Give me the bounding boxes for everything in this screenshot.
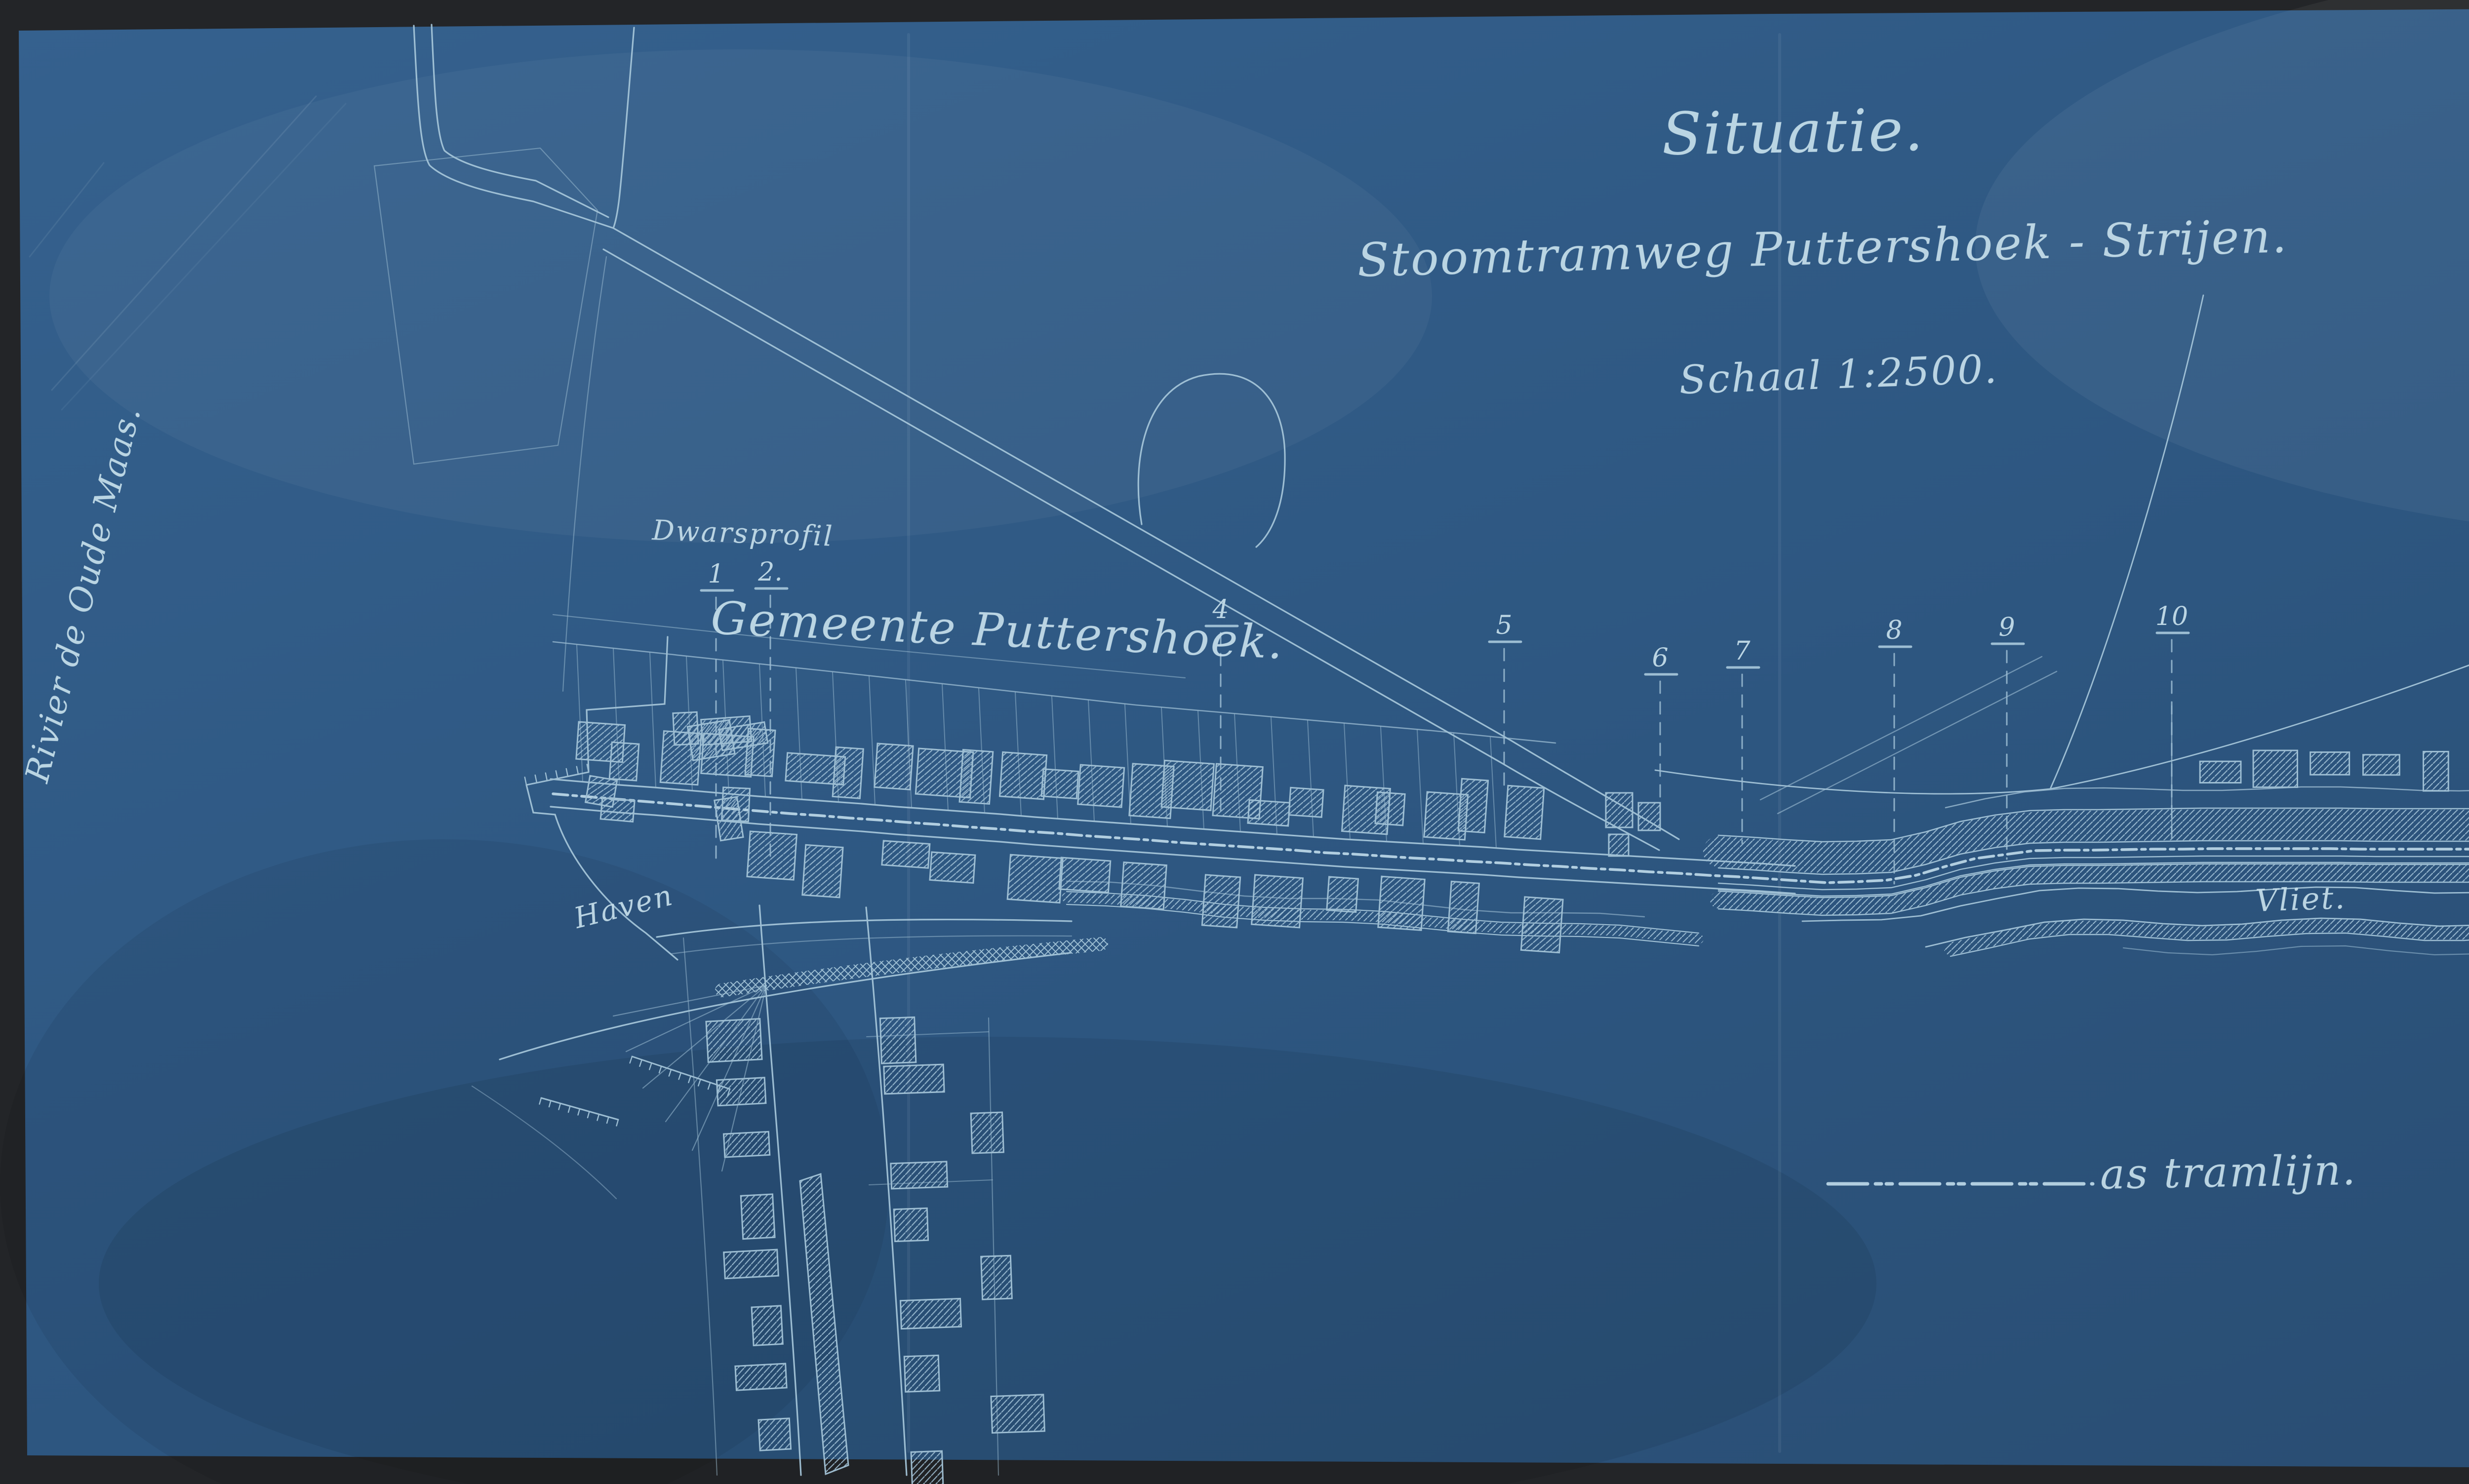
svg-text:1: 1 [708,559,724,589]
svg-text:5: 5 [1496,611,1512,640]
svg-text:10: 10 [2155,602,2188,631]
vliet-label: Vliet. [2255,880,2347,919]
cross-profile-label: Dwarsprofil [652,514,835,553]
svg-text:8: 8 [1886,616,1902,645]
svg-text:6: 6 [1652,643,1668,673]
legend-tramline-label: as tramlijn. [2100,1146,2357,1199]
page-title: Situatie. [1661,96,1925,168]
svg-text:7: 7 [1734,636,1751,666]
svg-text:2.: 2. [757,557,783,587]
svg-text:9: 9 [1998,613,2015,642]
blueprint-scan: 12.456789101112 Situatie. Stoomtramweg P… [0,0,2469,1484]
